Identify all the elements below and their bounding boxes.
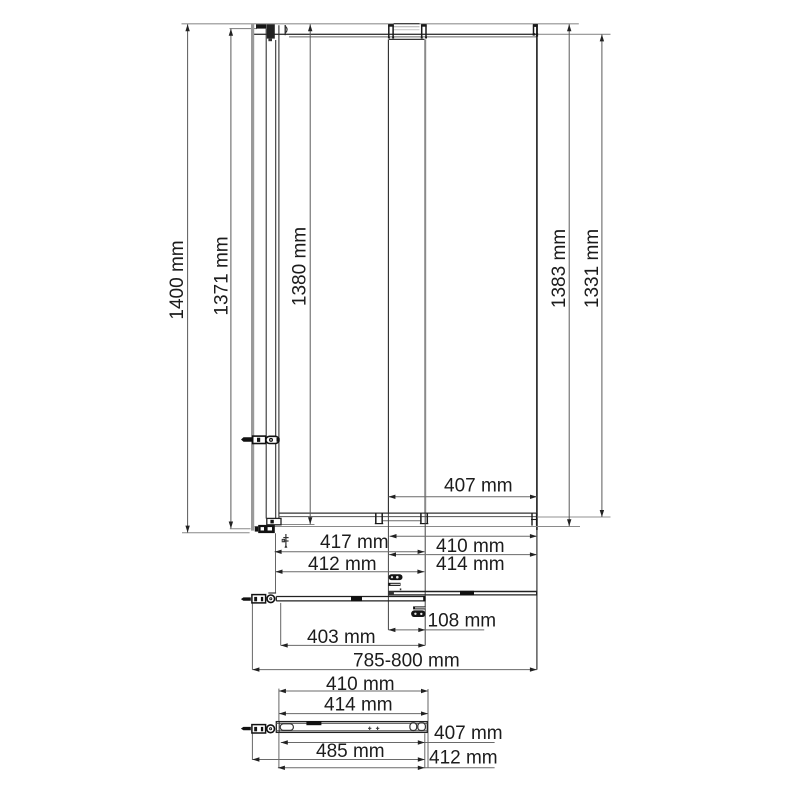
svg-text:485 mm: 485 mm bbox=[316, 741, 385, 762]
svg-text:1331 mm: 1331 mm bbox=[582, 229, 603, 308]
svg-text:785-800 mm: 785-800 mm bbox=[353, 650, 460, 671]
svg-text:407 mm: 407 mm bbox=[434, 723, 503, 744]
svg-text:403 mm: 403 mm bbox=[307, 627, 376, 648]
svg-text:1400 mm: 1400 mm bbox=[167, 240, 188, 319]
svg-text:412 mm: 412 mm bbox=[308, 554, 377, 575]
svg-text:412 mm: 412 mm bbox=[429, 748, 498, 769]
svg-text:410 mm: 410 mm bbox=[326, 674, 395, 695]
svg-text:407 mm: 407 mm bbox=[444, 476, 513, 497]
svg-text:1380 mm: 1380 mm bbox=[289, 227, 310, 306]
svg-text:1383 mm: 1383 mm bbox=[549, 229, 570, 308]
svg-text:414 mm: 414 mm bbox=[436, 554, 505, 575]
svg-text:414 mm: 414 mm bbox=[324, 694, 393, 715]
svg-text:108 mm: 108 mm bbox=[428, 611, 497, 632]
svg-text:1371 mm: 1371 mm bbox=[211, 236, 232, 315]
svg-text:417 mm: 417 mm bbox=[320, 532, 389, 553]
